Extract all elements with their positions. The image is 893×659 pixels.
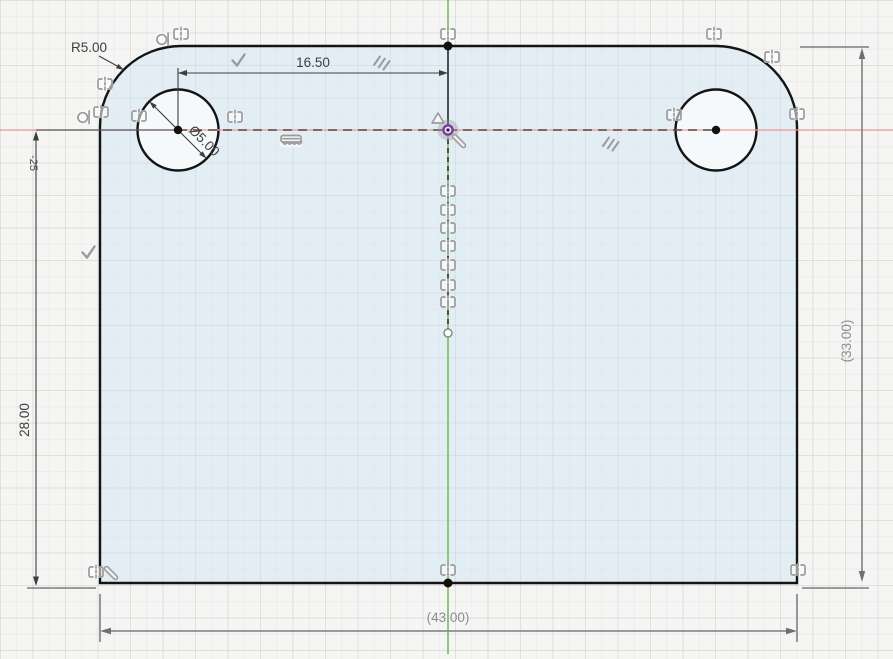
tangent-constraint-icon[interactable] — [77, 111, 92, 124]
midpoint-dot-top[interactable] — [444, 42, 453, 51]
symmetry-constraint-icon[interactable] — [706, 28, 723, 41]
symmetry-constraint-icon[interactable] — [440, 185, 457, 198]
symmetry-constraint-icon[interactable] — [764, 51, 781, 64]
perpendicular-constraint-icon[interactable] — [83, 247, 95, 258]
tangent-constraint-icon[interactable] — [156, 33, 171, 46]
dim-fillet-radius-text[interactable]: R5.00 — [71, 40, 107, 55]
dim-overall-height-text[interactable]: (33.00) — [839, 320, 854, 363]
midpoint-dot-bottom[interactable] — [444, 579, 453, 588]
symmetry-constraint-icon[interactable] — [440, 296, 457, 309]
symmetry-constraint-icon[interactable] — [173, 28, 190, 41]
symmetry-constraint-icon[interactable] — [88, 566, 105, 579]
dim-partial-label[interactable]: -25 — [27, 155, 39, 171]
symmetry-constraint-icon[interactable] — [440, 204, 457, 217]
hole-center-point-left[interactable] — [174, 126, 182, 134]
symmetry-constraint-icon[interactable] — [440, 28, 457, 41]
dim-overall-width-text[interactable]: (43.00) — [427, 610, 470, 625]
smooth-constraint-icon[interactable] — [280, 135, 302, 148]
symmetry-constraint-icon[interactable] — [93, 106, 110, 119]
symmetry-constraint-icon[interactable] — [440, 240, 457, 253]
symmetry-constraint-icon[interactable] — [666, 109, 683, 122]
symmetry-constraint-icon[interactable] — [440, 259, 457, 272]
dim-height-28-text[interactable]: 28.00 — [17, 403, 32, 437]
symmetry-constraint-icon[interactable] — [97, 78, 114, 91]
symmetry-constraint-icon[interactable] — [440, 279, 457, 292]
symmetry-constraint-icon[interactable] — [227, 111, 244, 124]
dim-overall-height-ref[interactable]: (33.00) — [800, 47, 869, 588]
symmetry-constraint-icon[interactable] — [790, 564, 807, 577]
sketch-canvas[interactable]: 16.50 R5.00 Ø5.00 28.00 -25 (33.00) — [0, 0, 893, 654]
dim-fillet-radius[interactable]: R5.00 — [71, 40, 124, 70]
canvas-background: 16.50 R5.00 Ø5.00 28.00 -25 (33.00) — [0, 0, 893, 659]
symmetry-constraint-icon[interactable] — [789, 108, 806, 121]
dim-hole-spacing-text[interactable]: 16.50 — [296, 55, 330, 70]
hole-center-point-right[interactable] — [712, 126, 720, 134]
line-endpoint[interactable] — [444, 329, 452, 337]
symmetry-constraint-icon[interactable] — [440, 564, 457, 577]
symmetry-constraint-icon[interactable] — [440, 222, 457, 235]
symmetry-constraint-icon[interactable] — [131, 110, 148, 123]
